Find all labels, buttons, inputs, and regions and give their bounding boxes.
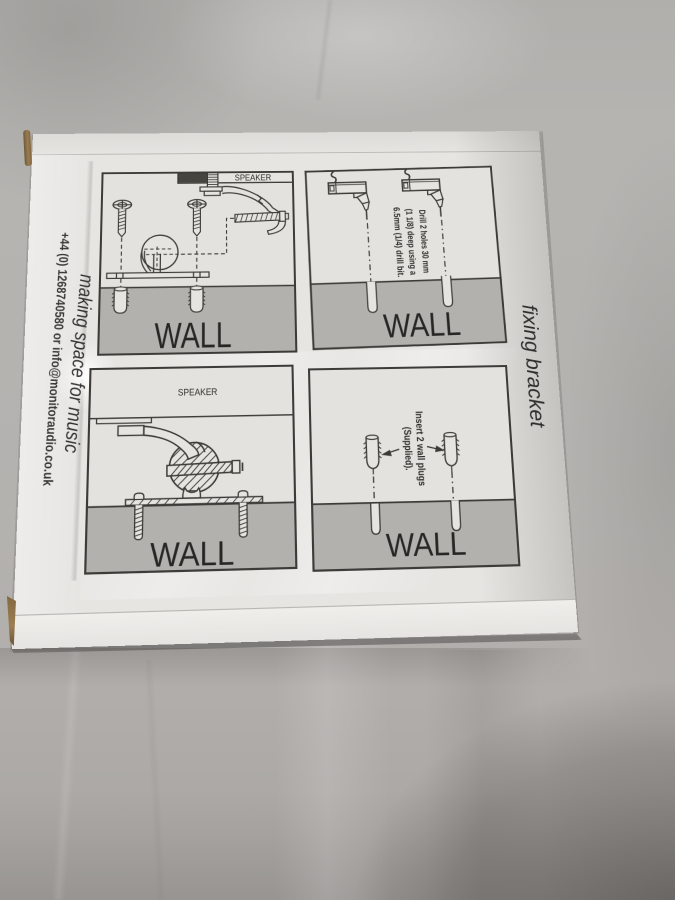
svg-text:fixing bracket: fixing bracket	[517, 304, 549, 429]
svg-text:(Supplied).: (Supplied).	[402, 426, 415, 470]
svg-text:WALL: WALL	[382, 305, 462, 345]
svg-text:SPEAKER: SPEAKER	[177, 386, 217, 398]
svg-text:WALL: WALL	[385, 526, 467, 565]
svg-text:WALL: WALL	[149, 534, 234, 574]
svg-text:SPEAKER: SPEAKER	[235, 172, 272, 182]
svg-text:Insert 2 wall plugs: Insert 2 wall plugs	[413, 410, 427, 485]
svg-text:WALL: WALL	[154, 316, 231, 356]
